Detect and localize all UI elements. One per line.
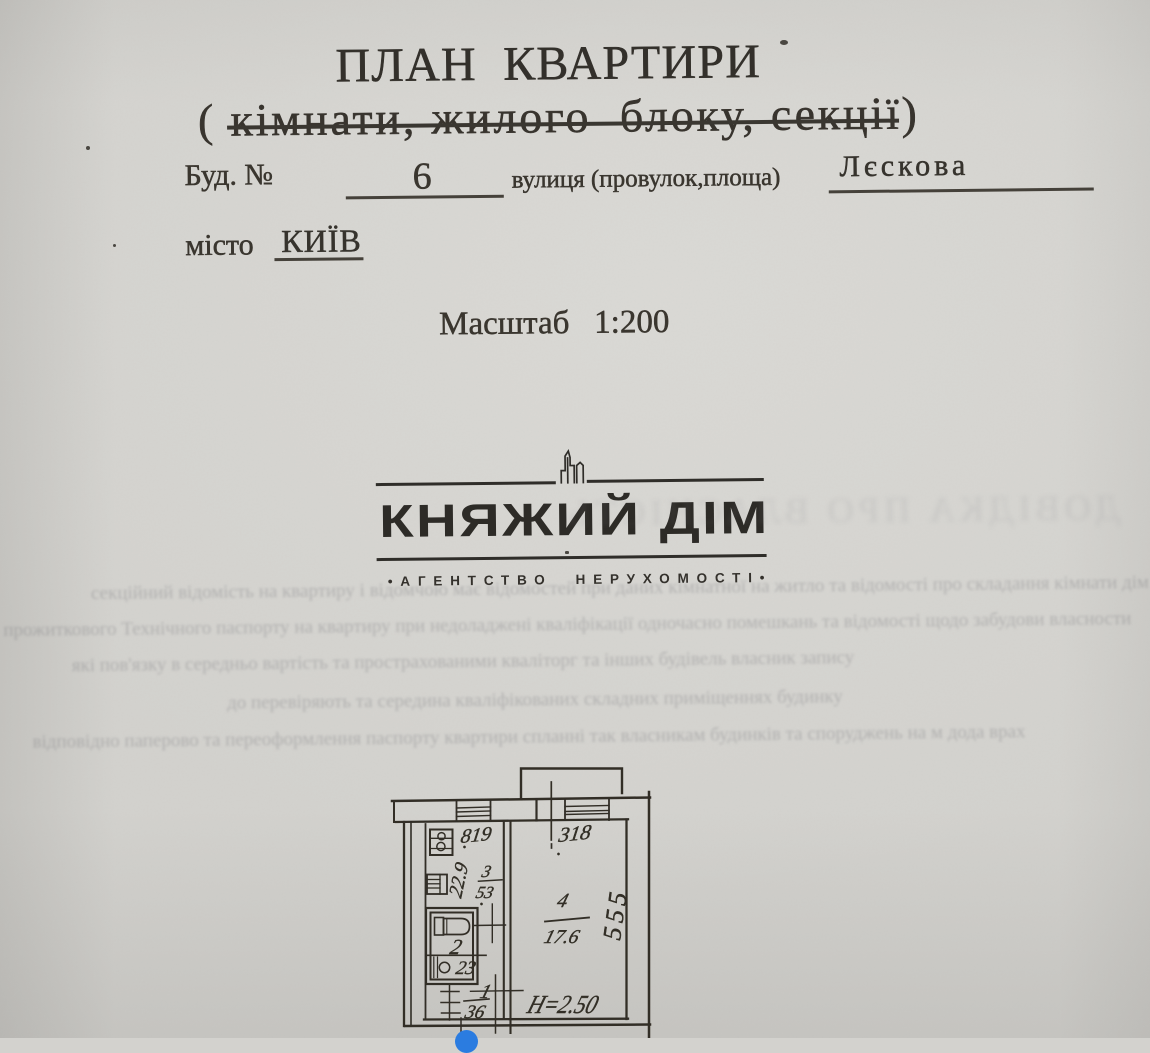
svg-text:23: 23 [454, 958, 478, 979]
svg-text:53: 53 [474, 883, 496, 902]
svg-text:819: 819 [459, 823, 493, 848]
svg-text:1: 1 [478, 981, 494, 1003]
svg-text:3: 3 [479, 862, 494, 881]
svg-text:22.9: 22.9 [445, 859, 473, 901]
svg-text:4: 4 [555, 890, 571, 912]
svg-text:555: 555 [597, 886, 633, 942]
svg-text:318: 318 [556, 820, 593, 847]
svg-text:17.6: 17.6 [542, 926, 582, 948]
svg-text:Н=2.50: Н=2.50 [523, 991, 602, 1019]
